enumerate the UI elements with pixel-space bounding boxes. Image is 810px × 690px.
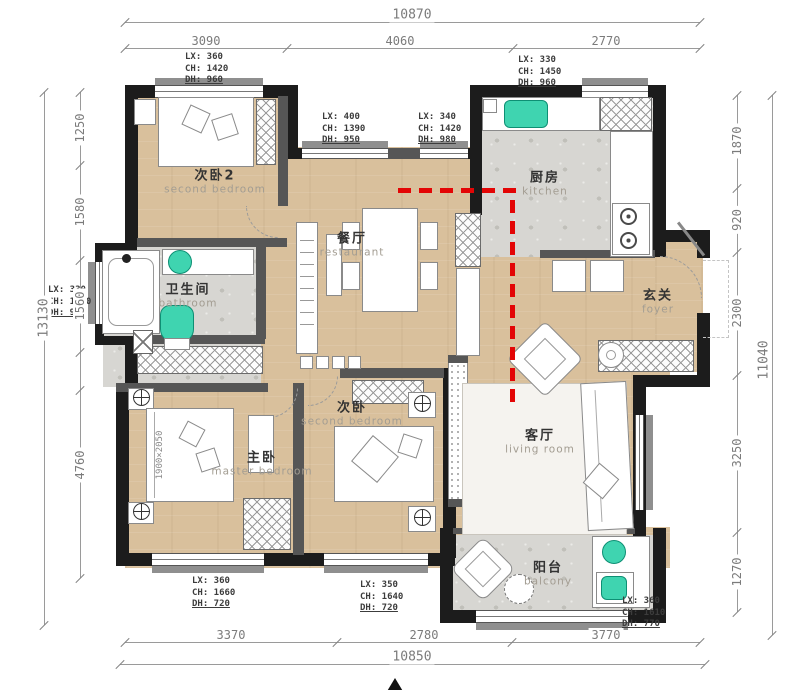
north-arrow-icon [386,678,404,690]
wall [116,385,129,566]
wardrobe-bedroom2 [256,99,276,165]
nightstand [134,99,156,125]
dim-seg: 2300 [730,296,744,331]
bathtub-basin [108,258,154,326]
dim-seg: 3090 [189,34,224,48]
room-label-dining: 餐厅 restaurant [320,228,385,259]
window-tag-top-mid-left: LX: 400CH: 1390DH: 950 [322,112,365,147]
shoe-box [300,356,313,369]
window [476,610,628,623]
wall-interior [137,335,265,344]
room-label-bedroom3: 次卧 second bedroom [301,397,403,428]
wall [645,375,710,387]
route-line-vertical [510,200,515,406]
shoe-box [348,356,361,369]
display-cabinet [456,268,480,356]
dining-chair [420,262,438,290]
column-boxing [455,213,481,267]
dim-seg: 3370 [214,628,249,642]
shoe-box [332,356,345,369]
room-label-bathroom: 卫生间 bathroom [158,279,217,310]
room-label-kitchen: 厨房 kitchen [522,167,568,198]
kitchen-corner-cabinet [600,97,652,131]
window-tag-top-right: LX: 330CH: 1450DH: 960 [518,55,561,90]
dim-total-right: 11040 [757,337,772,382]
toilet-tank [164,338,190,350]
room-label-master: 主卧 master bedroom [211,447,312,478]
window [324,553,428,566]
window-sill [324,566,428,573]
dim-seg: 1270 [730,555,744,590]
floor-drain-box [133,330,153,354]
window-tag-top-left: LX: 360CH: 1420DH: 960 [185,52,228,87]
laundry-sink [602,540,626,564]
lamp-icon [414,509,431,526]
window-tag-bottom-left: LX: 360CH: 1660DH: 720 [192,576,235,611]
lamp-icon [414,395,431,412]
wall-cap [448,355,468,363]
wall [288,85,298,155]
kitchen-column-box [483,99,497,113]
wall [470,85,482,215]
wall [288,148,302,159]
sofa [580,381,634,531]
window-tag-top-mid-right: LX: 340CH: 1420DH: 980 [418,112,461,147]
window-tag-bottom-mid: LX: 350CH: 1640DH: 720 [360,580,403,615]
entry-landing-outline [703,260,729,338]
wall [440,610,476,623]
dim-seg: 2780 [407,628,442,642]
dim-line [772,95,773,635]
room-label-bedroom2: 次卧2 second bedroom [164,165,266,196]
wall [95,336,137,345]
window [152,553,264,566]
dim-seg: 3770 [589,628,624,642]
wall-interior [278,96,288,206]
wall-interior [137,238,287,247]
dim-seg: 2770 [589,34,624,48]
dim-line [125,48,700,49]
dim-seg: 1560 [73,289,87,324]
dining-chair [420,222,438,250]
lamp-icon [133,389,150,406]
basin-sink [168,250,192,274]
dim-seg: 1250 [73,111,87,146]
dim-line [44,92,45,625]
side-table-inner [606,350,616,360]
room-label-foyer: 玄关 foyer [642,285,674,316]
dim-seg: 1870 [730,124,744,159]
dim-seg: 4760 [73,448,87,483]
dim-total-bottom: 10850 [389,650,434,665]
dim-seg: 4060 [383,34,418,48]
foyer-cabinet [590,260,624,292]
dining-table [362,208,418,312]
dim-seg: 1580 [73,195,87,230]
shoe-box [316,356,329,369]
dim-seg: 920 [730,206,744,234]
wardrobe-cabinet [137,346,263,374]
window-sill [152,566,264,573]
room-label-living: 客厅 living room [505,425,575,456]
bed-size-label: 1900×2050 [155,431,165,480]
stove-burner [620,232,637,249]
wall-interior [256,247,266,339]
bed-bedroom2 [158,97,254,167]
stove-burner [620,208,637,225]
window [420,148,468,159]
wall-interior [340,368,444,378]
wall [653,230,710,242]
exterior-cut-right-mid [646,377,726,527]
floor-plan: 1900×2050 次卧2 second bedroom 卫生间 bathroo… [0,0,810,690]
dining-chair [342,262,360,290]
window-sill [646,415,653,510]
lamp-icon [133,503,150,520]
window-tag-bottom-right: LX: 360CH: 1610DH: 770 [622,596,665,631]
dim-total-left: 13130 [37,295,52,340]
window [635,415,644,510]
foyer-cabinet [552,260,586,292]
route-line-horizontal [398,188,522,193]
drain-dot [122,254,131,263]
room-label-balcony: 阳台 balcony [524,557,572,588]
wall [388,148,420,159]
sideboard-lines [300,240,314,336]
wardrobe-master [243,498,291,550]
dim-line [125,642,700,643]
dim-line [737,95,738,612]
dim-seg: 3250 [730,436,744,471]
kitchen-sink [504,100,548,128]
window-sill [582,78,648,85]
dim-total-top: 10870 [389,8,434,23]
window [302,148,388,159]
